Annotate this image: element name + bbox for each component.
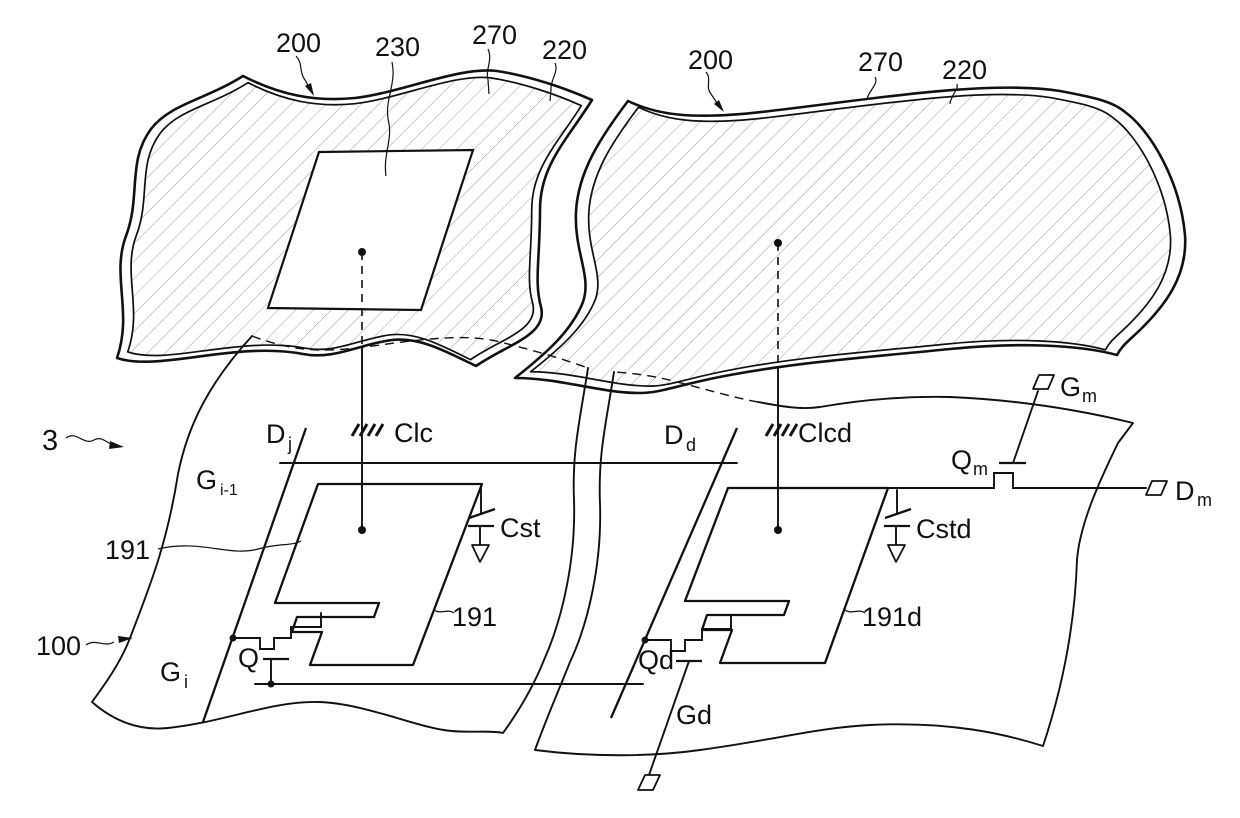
dummy-electrode-191d xyxy=(685,488,888,663)
data-line-dj xyxy=(203,428,306,722)
arrowhead-200-left xyxy=(305,83,314,96)
label-100: 100 xyxy=(36,631,81,661)
label-230: 230 xyxy=(375,32,420,62)
label-gi1-sub: i-1 xyxy=(220,482,238,499)
label-200-right: 200 xyxy=(688,45,733,75)
label-191-mid: 191 xyxy=(452,602,497,632)
label-qm-sub: m xyxy=(973,459,988,479)
label-3: 3 xyxy=(42,425,58,457)
gm-pad xyxy=(1033,375,1054,389)
label-220-left: 220 xyxy=(542,35,587,65)
leader-270-right xyxy=(867,77,876,99)
label-dj-base: D xyxy=(266,419,286,449)
upper-right-panel xyxy=(515,88,1185,393)
label-gi-sub: i xyxy=(184,672,188,692)
pixel-center-dot xyxy=(358,526,366,534)
label-dm-sub: m xyxy=(1197,490,1212,510)
patent-figure-page: 200 230 270 220 200 270 220 3 100 D j G … xyxy=(0,0,1240,818)
label-dd-base: D xyxy=(664,420,684,450)
leader-191-mid xyxy=(434,610,454,613)
label-200-left: 200 xyxy=(276,28,321,58)
leader-100 xyxy=(86,642,114,645)
clcd-capacitor-symbol xyxy=(766,424,797,436)
cst-ground-arrow xyxy=(472,545,489,562)
tft-qm-source-drain xyxy=(888,473,1146,488)
label-220-right: 220 xyxy=(942,55,987,85)
label-qd: Qd xyxy=(638,645,674,675)
arrowhead-3 xyxy=(109,441,124,449)
leader-3 xyxy=(66,436,111,444)
tft-qd-source-junction-dot xyxy=(642,637,649,644)
cstd-capacitor-symbol xyxy=(884,490,911,562)
pixel-electrode-191 xyxy=(275,484,482,665)
gd-pad xyxy=(638,775,660,790)
label-dm-base: D xyxy=(1175,476,1195,506)
label-qm-base: Q xyxy=(951,445,972,475)
leader-200-right xyxy=(706,72,717,103)
signal-lines xyxy=(203,428,737,722)
label-dj-sub: j xyxy=(287,434,292,454)
label-dd-sub: d xyxy=(686,435,696,455)
dm-pad xyxy=(1146,481,1167,495)
label-gi1-base: G xyxy=(196,465,217,495)
upper-left-panel xyxy=(117,70,592,366)
label-cst: Cst xyxy=(500,513,541,543)
label-270-left: 270 xyxy=(472,20,517,50)
tft-q-source-junction-dot xyxy=(230,635,237,642)
cst-capacitor-symbol xyxy=(468,486,495,562)
label-gd: Gd xyxy=(676,700,712,730)
label-gi-base: G xyxy=(160,657,181,687)
tft-q-gate-junction-dot xyxy=(268,681,275,688)
label-q: Q xyxy=(238,643,259,673)
label-clc: Clc xyxy=(394,418,433,448)
label-gm-base: G xyxy=(1060,372,1081,402)
label-cstd: Cstd xyxy=(916,514,972,544)
label-clcd: Clcd xyxy=(798,418,852,448)
leader-200-left xyxy=(296,56,309,87)
clc-capacitor-symbol xyxy=(352,424,383,436)
leader-191-left xyxy=(158,541,301,551)
label-gm-sub: m xyxy=(1082,386,1097,406)
label-191d: 191d xyxy=(862,602,922,632)
lower-substrate xyxy=(92,336,1133,755)
upper-right-panel-common-electrode-outline xyxy=(531,94,1171,386)
patent-figure-canvas: 200 230 270 220 200 270 220 3 100 D j G … xyxy=(0,0,1240,818)
label-270-right: 270 xyxy=(858,47,903,77)
cstd-ground-arrow xyxy=(888,545,905,562)
label-191-left: 191 xyxy=(105,535,150,565)
dummy-pixel-center-dot xyxy=(774,526,782,534)
display-pixel xyxy=(230,348,496,688)
